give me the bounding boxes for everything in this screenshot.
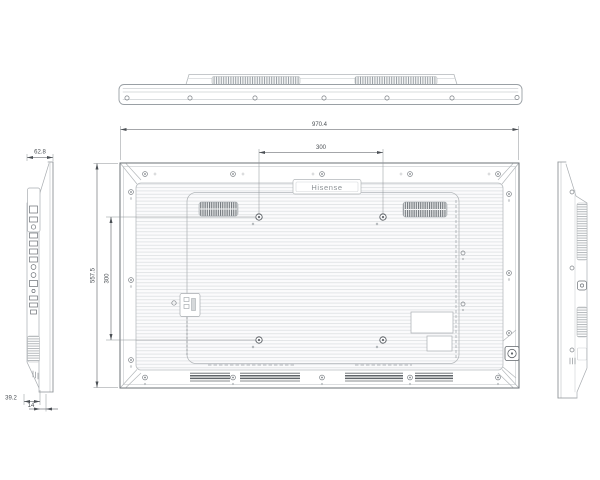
bottom-tick-marks [33, 371, 38, 379]
svg-text:300: 300 [105, 273, 111, 284]
dim-side-depth: 62.8 [27, 150, 53, 162]
dim-bottom-depth: 39.2 [5, 390, 40, 405]
top-view-panel-edge [119, 85, 522, 105]
rear-view: Hisense [120, 163, 519, 388]
side-power-button [578, 281, 587, 290]
svg-text:970.4: 970.4 [312, 122, 328, 128]
connector-ports [30, 206, 38, 314]
side-small-panel [578, 348, 587, 360]
top-speaker-grille-left [212, 77, 300, 85]
right-side-view [558, 162, 587, 398]
brand-logo-text: Hisense [311, 183, 342, 192]
dim-overall-width: 970.4 [121, 122, 519, 160]
side-vent-lower [577, 307, 587, 337]
side-screw-holes [570, 190, 574, 352]
rating-label [411, 312, 453, 333]
svg-text:300: 300 [316, 145, 327, 151]
svg-text:14: 14 [28, 403, 35, 409]
top-speaker-grille-right [355, 77, 437, 85]
drawing-page: Hisense [0, 0, 600, 480]
side-vent-upper [577, 203, 587, 260]
left-side-view [27, 162, 53, 392]
side-vent-left [28, 336, 40, 362]
brand-logo: Hisense [293, 180, 361, 195]
top-view [119, 75, 522, 105]
bottom-tick-marks [570, 358, 575, 364]
svg-text:62.8: 62.8 [34, 150, 46, 156]
spec-label [427, 336, 452, 351]
svg-text:557.5: 557.5 [91, 267, 97, 283]
technical-drawing: Hisense [0, 0, 600, 480]
dim-bottom-inset: 14 [28, 394, 58, 412]
svg-text:39.2: 39.2 [5, 396, 17, 402]
